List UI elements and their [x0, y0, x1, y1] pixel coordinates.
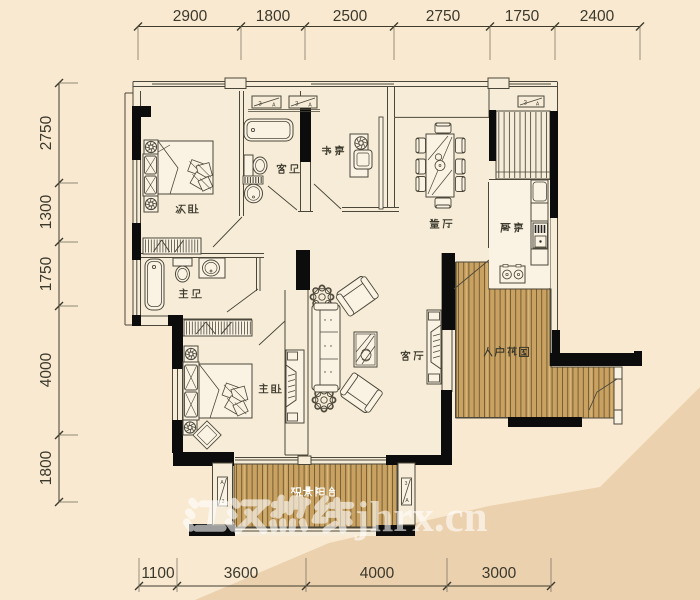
svg-text:2500: 2500 — [333, 8, 368, 25]
svg-text:1300: 1300 — [38, 194, 55, 229]
svg-text:3600: 3600 — [224, 565, 259, 582]
svg-text:4000: 4000 — [38, 352, 55, 387]
svg-text:jhrx.cn: jhrx.cn — [354, 494, 488, 541]
svg-text:1100: 1100 — [141, 565, 175, 582]
svg-text:2400: 2400 — [580, 8, 615, 25]
svg-text:1750: 1750 — [38, 256, 55, 291]
svg-text:2900: 2900 — [173, 8, 208, 25]
svg-text:2750: 2750 — [426, 8, 461, 25]
svg-text:1800: 1800 — [256, 8, 291, 25]
svg-text:4000: 4000 — [360, 565, 395, 582]
svg-text:1800: 1800 — [38, 450, 55, 485]
svg-text:3000: 3000 — [482, 565, 517, 582]
svg-text:1750: 1750 — [505, 8, 540, 25]
svg-text:3: 3 — [405, 481, 408, 487]
svg-text:2750: 2750 — [38, 115, 55, 150]
